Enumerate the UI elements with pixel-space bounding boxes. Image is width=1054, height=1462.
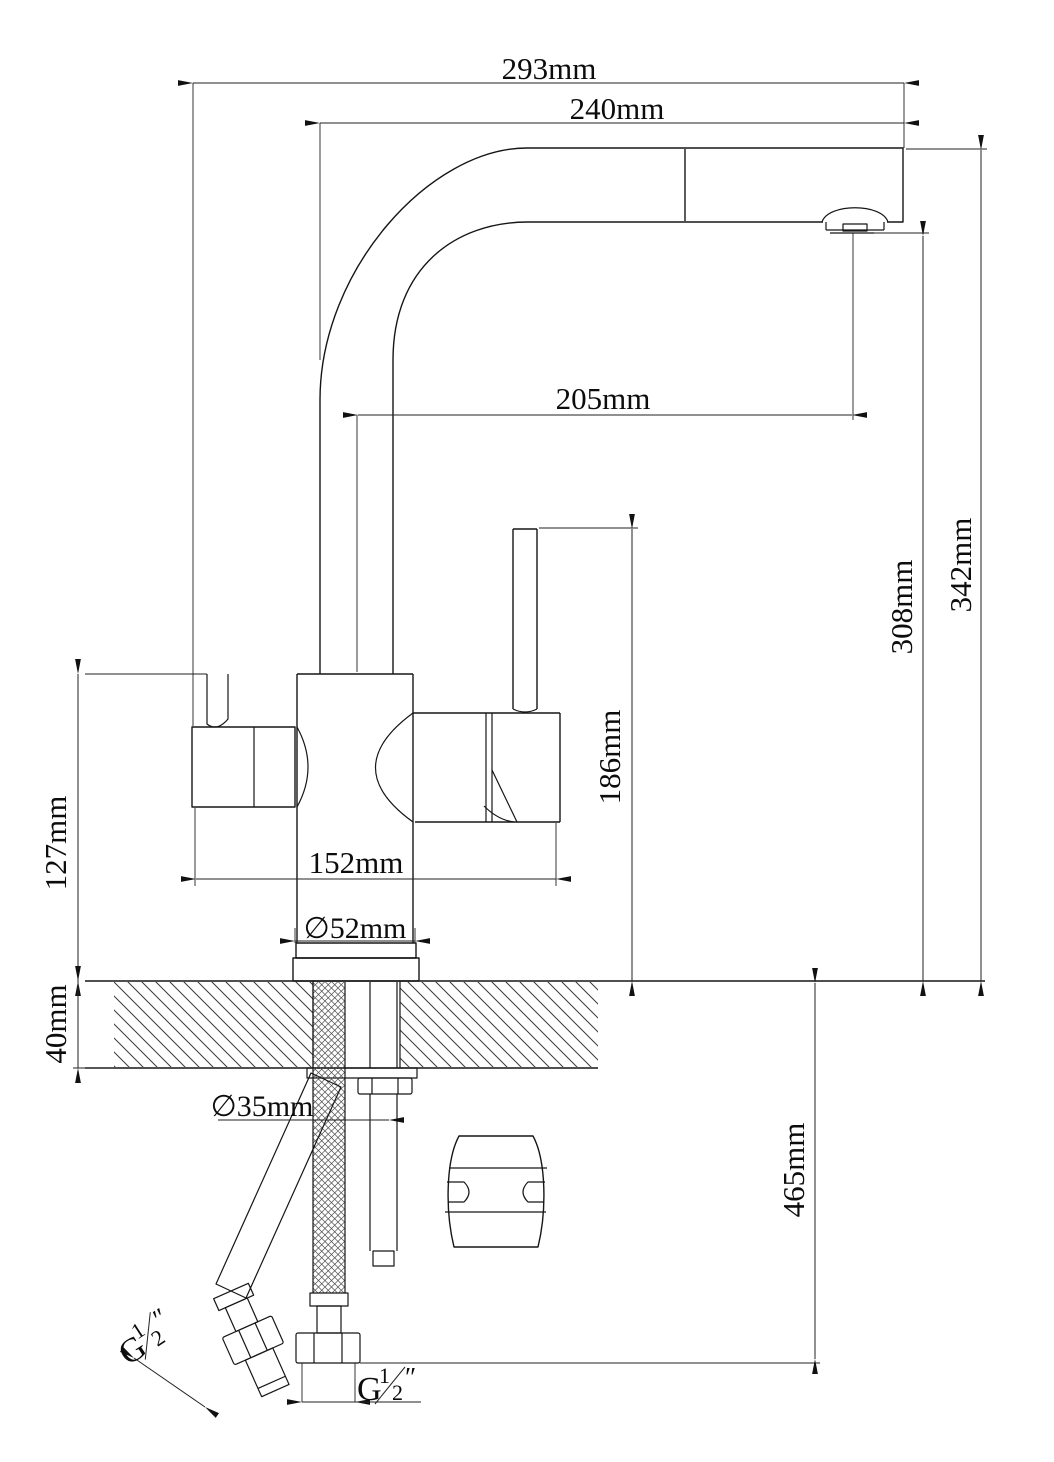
dim-52-label: ∅52mm [304, 912, 407, 945]
dim-465-label: 465mm [776, 1123, 811, 1218]
base-flange [293, 943, 419, 981]
faucet-outline [192, 148, 903, 981]
dim-projection-205: 205mm [357, 233, 853, 672]
thread-bottom-denominator: 2 [392, 1380, 403, 1405]
faucet-dimension-drawing: 293mm 240mm 205mm 342mm 308mm 186mm [0, 0, 1054, 1462]
dim-293-label: 293mm [502, 51, 597, 86]
aerator [822, 208, 888, 233]
dim-186-label: 186mm [592, 710, 627, 805]
dim-40-label: 40mm [38, 984, 73, 1063]
threaded-stud [370, 982, 397, 1266]
faucet-body [297, 674, 413, 943]
technical-drawing-page: 293mm 240mm 205mm 342mm 308mm 186mm [0, 0, 1054, 1462]
dim-overall-reach-293: 293mm [193, 51, 904, 726]
dim-thread-left: G 1 2 ″ [107, 1302, 205, 1407]
dim-lever-height-186: 186mm [539, 528, 638, 981]
dim-outlet-height-308: 308mm [874, 233, 929, 981]
thread-bottom-unit: ″ [405, 1362, 416, 1392]
dim-152-label: 152mm [309, 845, 404, 880]
thread-bottom-numerator: 1 [379, 1363, 390, 1388]
dim-35-label: ∅35mm [211, 1090, 314, 1123]
dim-base-diameter-52: ∅52mm [295, 912, 415, 945]
dim-127-label: 127mm [38, 796, 73, 891]
dim-deck-thickness-40: 40mm [38, 981, 114, 1068]
mounting-nut [358, 1078, 412, 1094]
dim-342-label: 342mm [943, 518, 978, 613]
dimensions: 293mm 240mm 205mm 342mm 308mm 186mm [38, 51, 987, 1408]
dim-spout-reach-240: 240mm [320, 91, 904, 360]
dim-240-label: 240mm [570, 91, 665, 126]
dim-205-label: 205mm [556, 381, 651, 416]
dim-body-width-152: 152mm [195, 808, 556, 886]
right-handle-lever [413, 529, 560, 822]
barrel-nut-part [445, 1136, 547, 1247]
dim-body-height-127: 127mm [38, 674, 207, 981]
countertop-section [85, 981, 985, 1068]
left-handle [192, 674, 295, 807]
thread-bottom-prefix: G [357, 1371, 382, 1408]
dim-hole-diameter-35: ∅35mm [211, 1090, 389, 1123]
dim-thread-bottom: G 1 2 ″ [302, 1362, 421, 1408]
dim-308-label: 308mm [884, 560, 919, 655]
